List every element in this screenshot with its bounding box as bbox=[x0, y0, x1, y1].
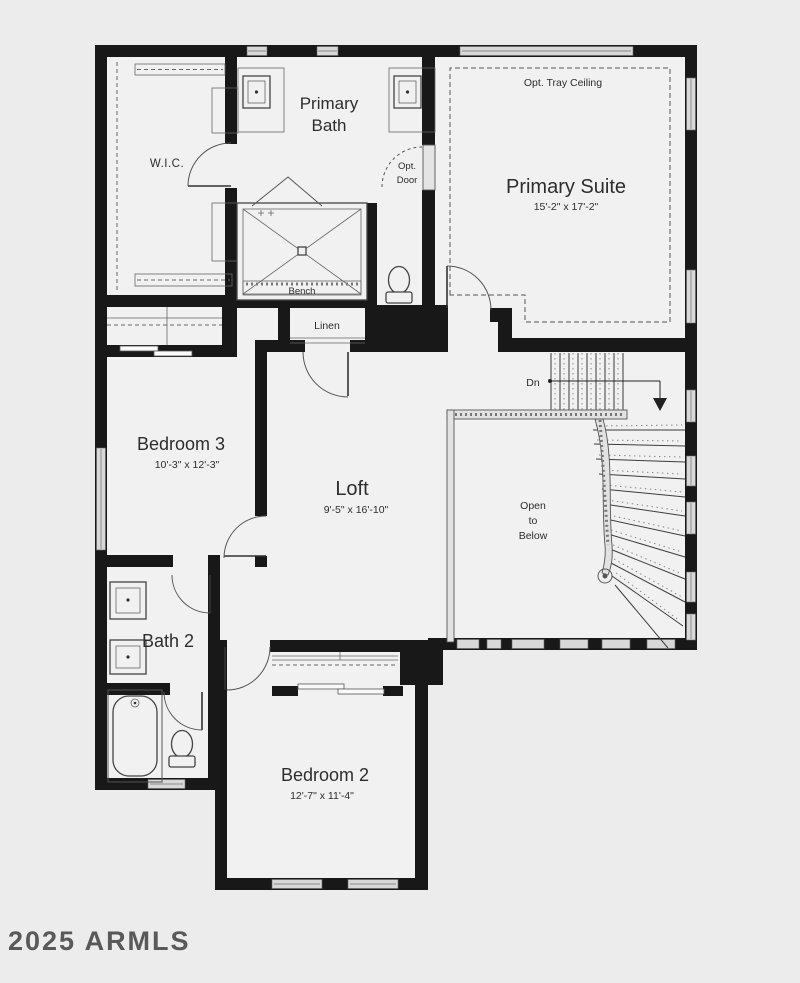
label-primary-bath-line2: Bath bbox=[312, 116, 347, 135]
label-stairs-down: Dn bbox=[526, 377, 540, 389]
window bbox=[457, 640, 479, 649]
vanity-bath2-top bbox=[110, 582, 146, 619]
window bbox=[687, 456, 696, 486]
window bbox=[602, 640, 630, 649]
window bbox=[560, 640, 588, 649]
window bbox=[97, 448, 106, 550]
window bbox=[317, 47, 338, 56]
label-primary-bath-line1: Primary bbox=[300, 94, 359, 113]
label-open-to-below-line3: Below bbox=[519, 530, 548, 542]
window bbox=[687, 502, 696, 534]
window bbox=[148, 780, 185, 789]
window bbox=[272, 880, 322, 889]
toilet-bath2 bbox=[169, 731, 195, 768]
label-opt-door-line1: Opt. bbox=[398, 161, 416, 172]
label-bench: Bench bbox=[289, 286, 316, 297]
window bbox=[647, 640, 675, 649]
label-bath2: Bath 2 bbox=[142, 631, 194, 651]
label-loft: Loft bbox=[335, 478, 369, 500]
label-opt-door-line2: Door bbox=[397, 175, 418, 186]
window bbox=[348, 880, 398, 889]
label-primary-suite: Primary Suite bbox=[506, 176, 626, 198]
floor-plan-page: Primary Bath W.I.C. Opt. Tray Ceiling Pr… bbox=[0, 0, 800, 983]
label-open-to-below-line2: to bbox=[529, 515, 538, 527]
label-open-to-below-line1: Open bbox=[520, 500, 546, 512]
window bbox=[247, 47, 267, 56]
label-linen: Linen bbox=[314, 320, 340, 332]
window bbox=[487, 640, 501, 649]
label-bedroom3: Bedroom 3 bbox=[137, 434, 225, 454]
label-loft-dims: 9'-5" x 16'-10" bbox=[324, 504, 389, 516]
label-bedroom2: Bedroom 2 bbox=[281, 765, 369, 785]
window bbox=[687, 270, 696, 323]
window bbox=[687, 572, 696, 602]
label-bedroom2-dims: 12'-7" x 11'-4" bbox=[290, 790, 354, 802]
window bbox=[687, 614, 696, 640]
window bbox=[512, 640, 544, 649]
label-bedroom3-dims: 10'-3" x 12'-3" bbox=[155, 459, 220, 471]
label-opt-tray-ceiling: Opt. Tray Ceiling bbox=[524, 77, 602, 89]
window bbox=[687, 390, 696, 422]
bathtub bbox=[108, 690, 162, 782]
window bbox=[687, 78, 696, 130]
floor-plan: Primary Bath W.I.C. Opt. Tray Ceiling Pr… bbox=[0, 0, 800, 983]
toilet-primary bbox=[386, 267, 412, 304]
label-wic: W.I.C. bbox=[150, 158, 184, 170]
vanity-bath2-bottom bbox=[110, 640, 146, 674]
window bbox=[460, 47, 633, 56]
watermark: 2025 ARMLS bbox=[8, 926, 191, 956]
label-primary-suite-dims: 15'-2" x 17'-2" bbox=[534, 201, 599, 213]
